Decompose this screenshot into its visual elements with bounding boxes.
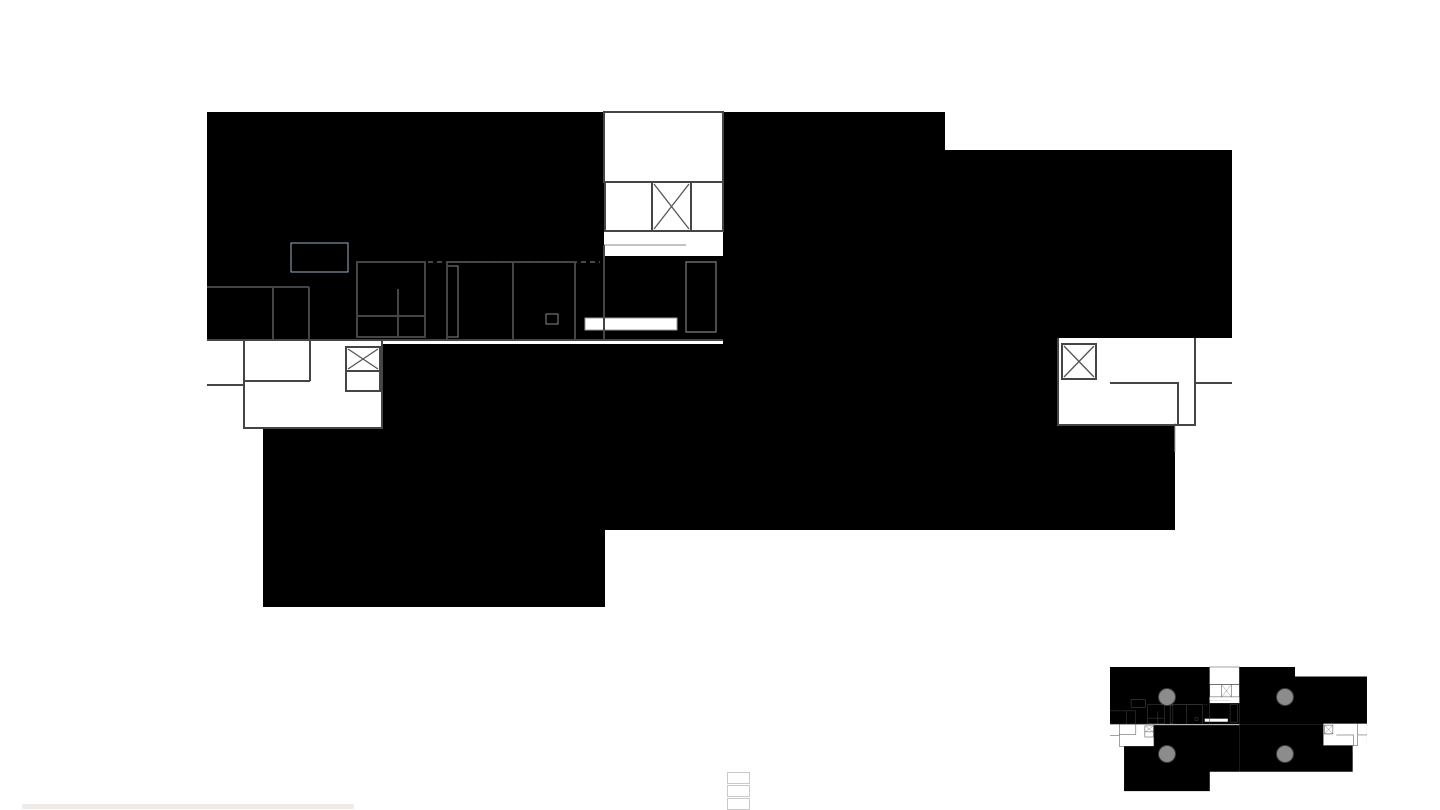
legend-item-3-cropped xyxy=(727,797,758,810)
cropped-text-artifact xyxy=(22,804,354,809)
legend xyxy=(727,768,758,810)
minimap-plan xyxy=(1110,667,1367,791)
legend-swatch-flaeche-neu xyxy=(727,785,750,797)
minimap-zone-label-2 xyxy=(1159,746,1176,763)
floor-plan xyxy=(207,112,1232,607)
minimap-zone-label-4 xyxy=(1277,746,1294,763)
floor-plan-svg xyxy=(0,0,1440,810)
legend-item-1 xyxy=(727,771,758,784)
legend-swatch-flaeche-best xyxy=(727,772,750,784)
minimap-zone-label-1 xyxy=(1159,689,1176,706)
legend-swatch-cropped xyxy=(727,798,750,810)
legend-item-2 xyxy=(727,784,758,797)
zone-3-rose xyxy=(723,112,1232,340)
minimap-zone-label-3 xyxy=(1277,689,1294,706)
